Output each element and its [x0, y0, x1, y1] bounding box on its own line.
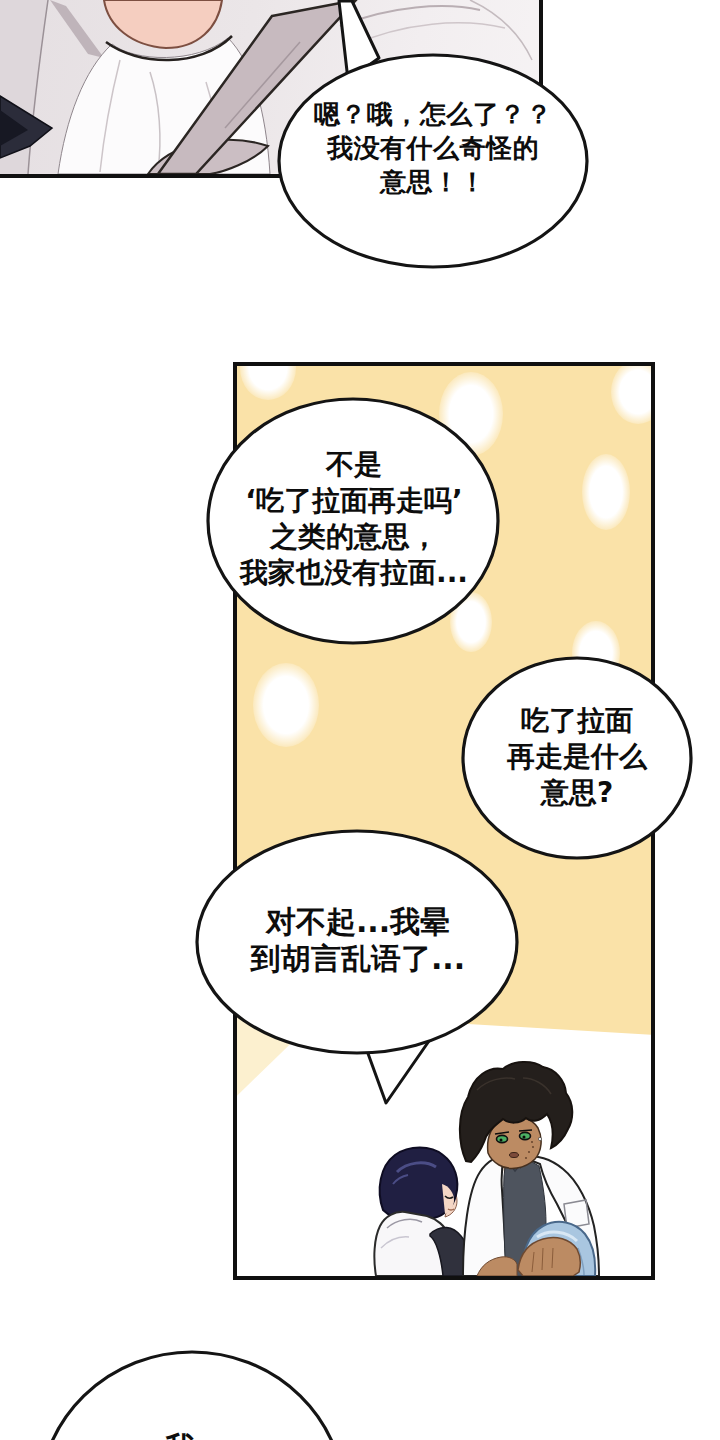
comic-page: 嗯？哦，怎么了？？ 我没有什么奇怪的 意思！！ 不是 ‘吃了拉面再走吗’ 之类的…: [0, 0, 720, 1440]
stubble: [525, 1157, 527, 1159]
stubble: [532, 1146, 534, 1148]
bubble-apology-text: 对不起...我晕 到胡言乱语了...: [212, 903, 504, 977]
bubble-line: 意思?: [462, 775, 692, 811]
bubble-noodle-denial-text: 不是 ‘吃了拉面再走吗’ 之类的意思， 我家也没有拉面...: [213, 447, 495, 591]
bubble-bottom-partial: [39, 1352, 345, 1440]
bubble-line: 嗯？哦，怎么了？？: [288, 97, 578, 131]
stubble: [531, 1141, 533, 1143]
hair-strand: [50, 0, 104, 58]
bubble-bottom-partial-text: 我: [158, 1431, 202, 1440]
bubble-line: 再走是什么: [462, 739, 692, 775]
bubble-line: 到胡言乱语了...: [212, 940, 504, 977]
man-figure: [460, 1062, 599, 1276]
pupil: [500, 1139, 503, 1142]
shoulder-seam: [350, 23, 505, 46]
stubble: [528, 1151, 530, 1153]
torso-skin: [104, 0, 222, 48]
bubble-line: 之类的意思，: [213, 519, 495, 555]
bubble-line: 意思！！: [288, 165, 578, 199]
bubble-line: 对不起...我晕: [212, 903, 504, 940]
bubble-line: 我: [158, 1431, 202, 1440]
bubble-line: 我没有什么奇怪的: [288, 131, 578, 165]
pupil: [523, 1136, 526, 1139]
bubble-line: 吃了拉面: [462, 703, 692, 739]
bubble-line: 不是: [213, 447, 495, 483]
man-mouth: [510, 1153, 519, 1158]
bubble-top-text: 嗯？哦，怎么了？？ 我没有什么奇怪的 意思！！: [288, 97, 578, 199]
bubble-line: ‘吃了拉面再走吗’: [213, 483, 495, 519]
bubble-noodle-question-text: 吃了拉面 再走是什么 意思?: [462, 703, 692, 811]
bubble-line: 我家也没有拉面...: [213, 555, 495, 591]
earring: [538, 1137, 541, 1140]
